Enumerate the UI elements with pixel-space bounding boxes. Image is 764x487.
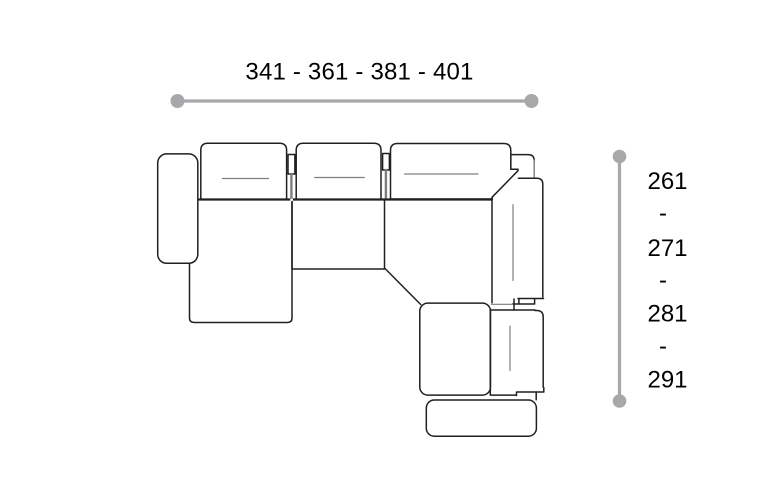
svg-text:341 - 361 - 381 - 401: 341 - 361 - 381 - 401: [245, 59, 473, 86]
svg-text:281: 281: [647, 301, 687, 328]
svg-text:-: -: [659, 200, 667, 227]
svg-text:291: 291: [647, 367, 687, 394]
svg-text:261: 261: [647, 168, 687, 195]
svg-text:-: -: [659, 333, 667, 360]
svg-text:-: -: [659, 267, 667, 294]
svg-text:271: 271: [647, 235, 687, 262]
